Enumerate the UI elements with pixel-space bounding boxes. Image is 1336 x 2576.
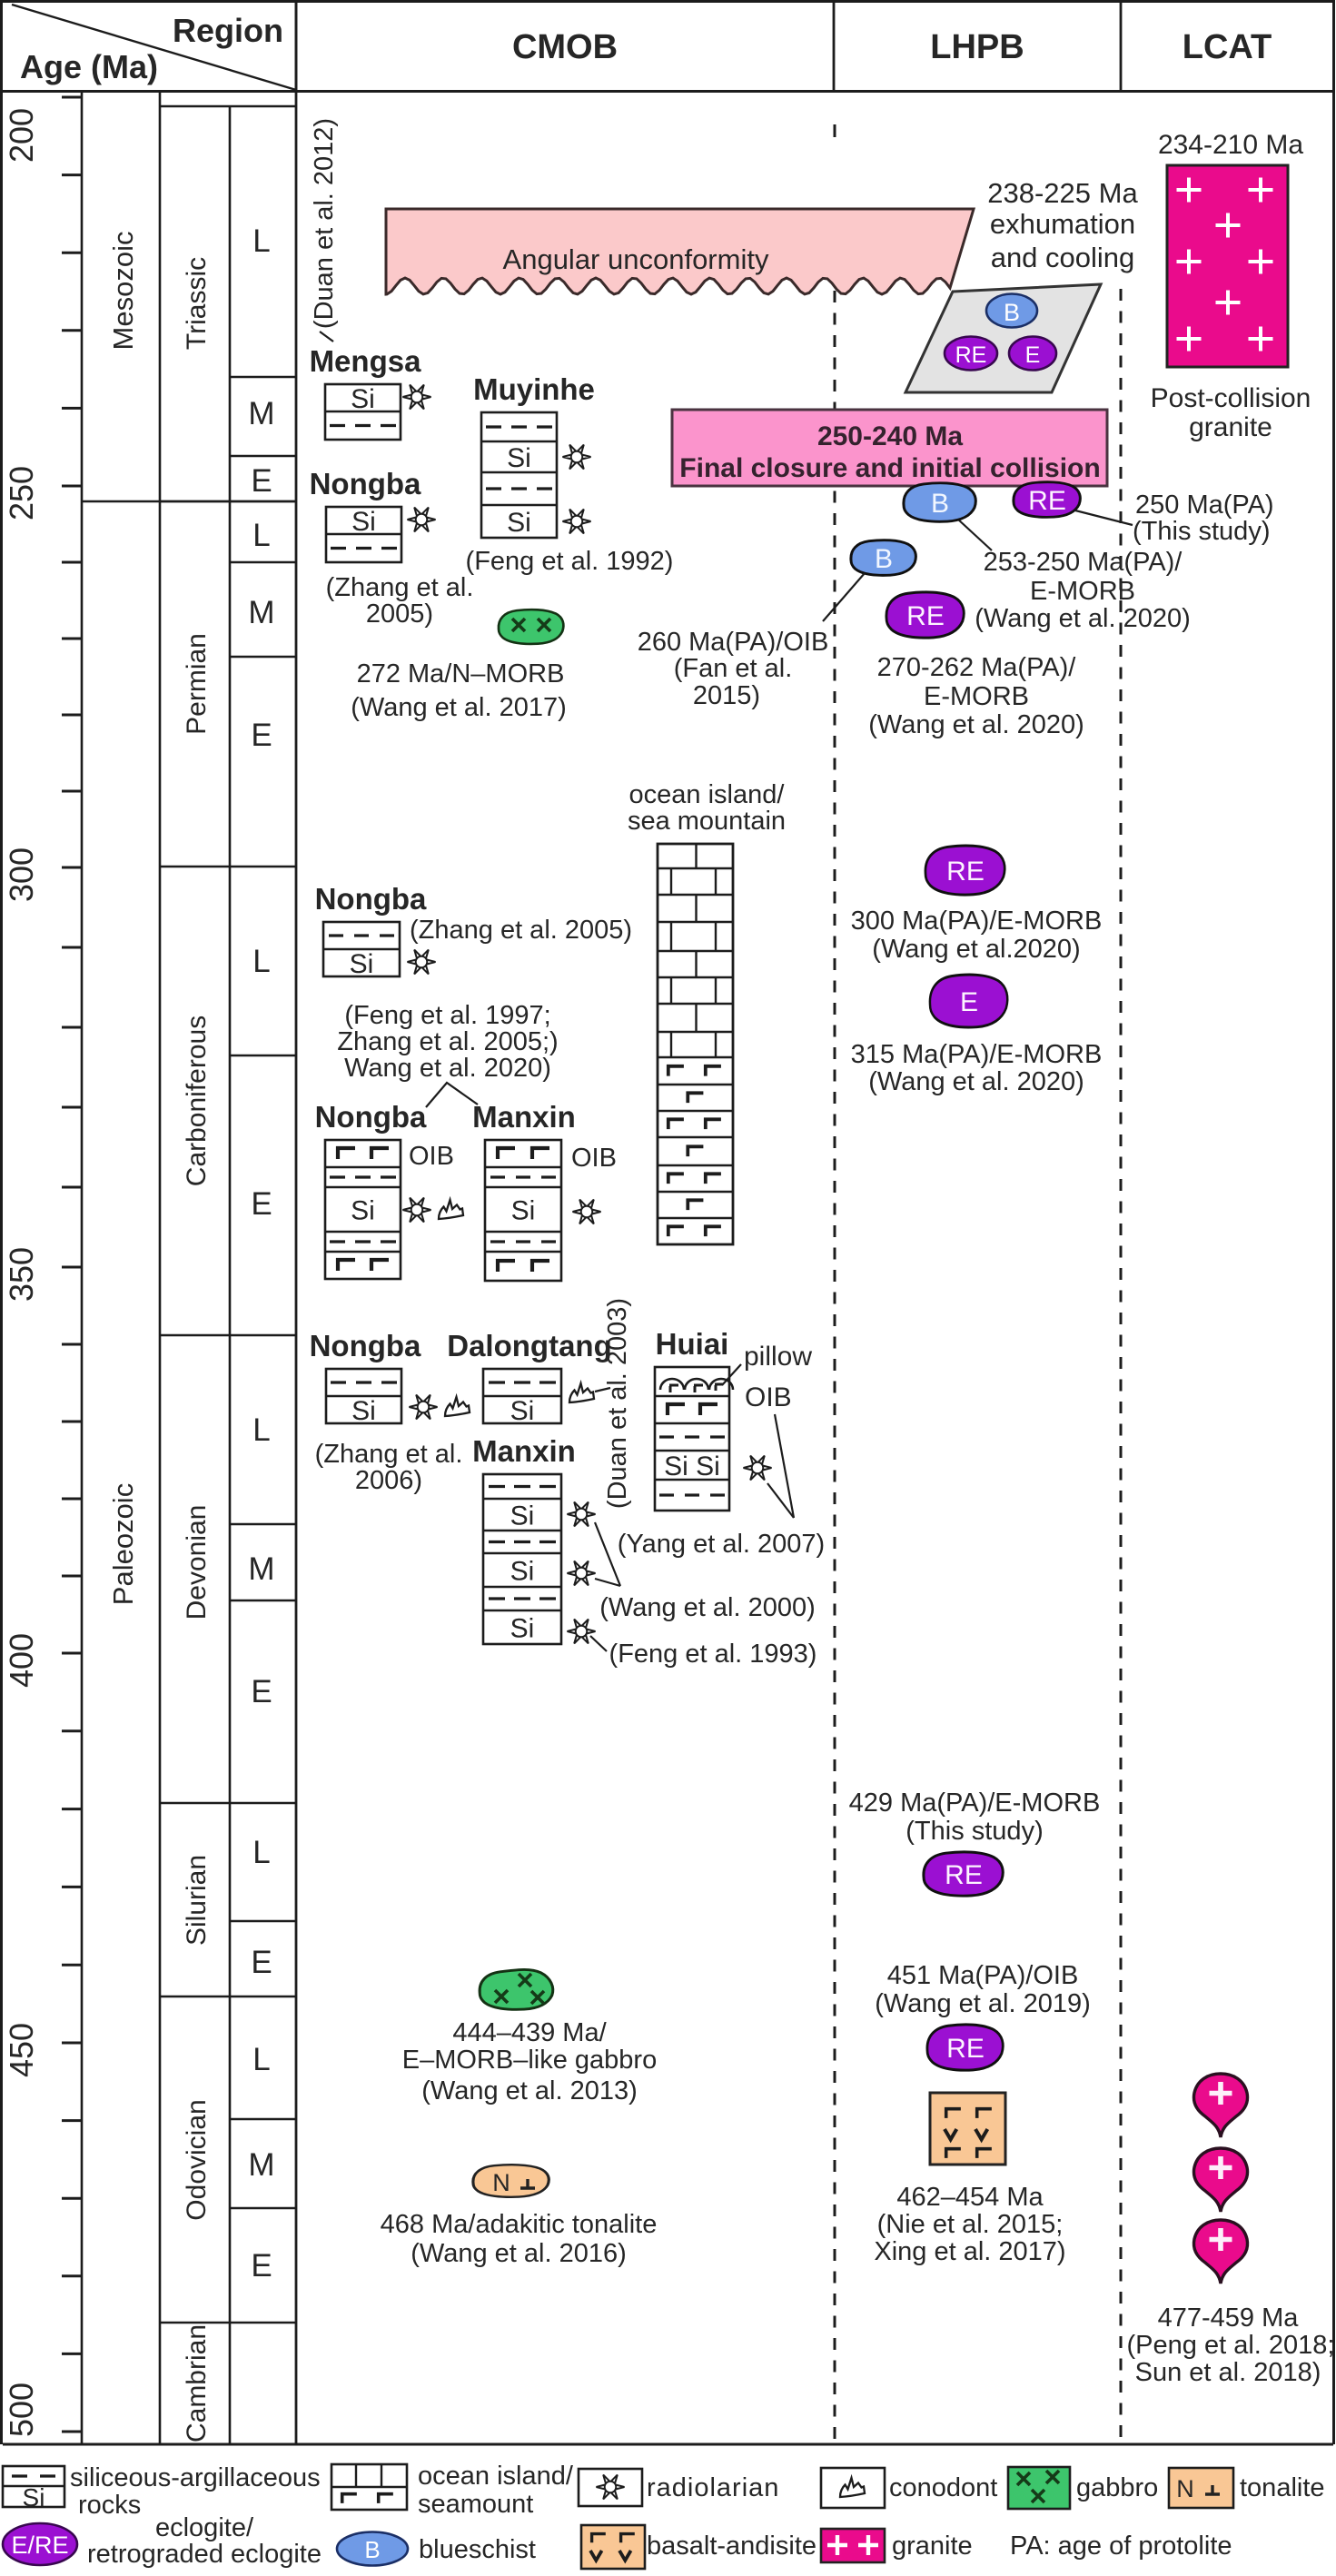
svg-text:Si: Si	[510, 1557, 535, 1587]
svg-text:(This study): (This study)	[1133, 517, 1270, 546]
svg-text:477-459 Ma: 477-459 Ma	[1158, 2304, 1300, 2333]
svg-text:Manxin: Manxin	[472, 1100, 576, 1134]
svg-text:L: L	[252, 1412, 270, 1448]
svg-text:Mengsa: Mengsa	[310, 344, 422, 378]
svg-text:ocean island/: ocean island/	[418, 2462, 574, 2491]
svg-text:PA: age of protolite: PA: age of protolite	[1010, 2531, 1232, 2561]
svg-text:2005): 2005)	[366, 599, 433, 629]
svg-text:N: N	[1176, 2475, 1194, 2502]
svg-text:tonalite: tonalite	[1240, 2473, 1325, 2502]
svg-text:Silurian: Silurian	[182, 1855, 212, 1946]
svg-text:444–439 Ma/: 444–439 Ma/	[452, 2018, 607, 2047]
svg-text:Xing et al. 2017): Xing et al. 2017)	[874, 2237, 1065, 2266]
svg-text:(Fan et al.: (Fan et al.	[674, 654, 793, 683]
svg-text:E-MORB: E-MORB	[924, 682, 1029, 711]
svg-text:rocks: rocks	[78, 2491, 141, 2520]
svg-text:(Feng et al. 1992): (Feng et al. 1992)	[466, 547, 674, 576]
svg-text:and cooling: and cooling	[991, 242, 1135, 273]
svg-text:Paleozoic: Paleozoic	[107, 1483, 139, 1605]
svg-text:238-225 Ma: 238-225 Ma	[987, 177, 1138, 209]
svg-text:Post-collision: Post-collision	[1151, 383, 1311, 413]
svg-text:L: L	[252, 223, 270, 259]
svg-text:eclogite/: eclogite/	[155, 2513, 254, 2542]
svg-text:E: E	[251, 2248, 272, 2284]
svg-text:Cambrian: Cambrian	[182, 2324, 212, 2442]
svg-text:seamount: seamount	[418, 2490, 533, 2519]
svg-text:Muyinhe: Muyinhe	[473, 372, 595, 406]
svg-text:260 Ma(PA)/OIB: 260 Ma(PA)/OIB	[638, 628, 829, 657]
svg-text:(Wang et al. 2020): (Wang et al. 2020)	[868, 710, 1084, 739]
svg-text:OIB: OIB	[409, 1142, 454, 1171]
svg-text:Zhang et al. 2005;): Zhang et al. 2005;)	[337, 1027, 558, 1056]
svg-text:(Duan et al. 2012): (Duan et al. 2012)	[310, 118, 339, 329]
svg-text:M: M	[248, 1551, 274, 1587]
svg-text:250-240 Ma: 250-240 Ma	[817, 421, 963, 451]
svg-text:B: B	[931, 489, 949, 519]
svg-text:ocean island/: ocean island/	[629, 780, 786, 809]
svg-text:Dalongtang: Dalongtang	[447, 1329, 611, 1362]
svg-text:N: N	[492, 2169, 510, 2196]
svg-text:Si: Si	[351, 1396, 376, 1426]
svg-text:RE: RE	[946, 857, 985, 887]
svg-text:L: L	[252, 944, 270, 979]
svg-text:blueschist: blueschist	[419, 2535, 536, 2564]
svg-text:M: M	[248, 595, 274, 630]
svg-text:Carboniferous: Carboniferous	[182, 1016, 212, 1186]
svg-text:(Wang et al. 2020): (Wang et al. 2020)	[975, 604, 1191, 633]
svg-text:234-210 Ma: 234-210 Ma	[1158, 130, 1303, 160]
svg-text:(Wang et al. 2000): (Wang et al. 2000)	[599, 1593, 816, 1622]
svg-text:Permian: Permian	[182, 633, 212, 735]
svg-text:Si: Si	[510, 1614, 535, 1644]
svg-text:retrograded eclogite: retrograded eclogite	[87, 2540, 322, 2569]
svg-text:(Zhang et al. 2005): (Zhang et al. 2005)	[410, 916, 632, 945]
svg-text:462–454 Ma: 462–454 Ma	[896, 2183, 1044, 2212]
svg-text:450: 450	[3, 2023, 40, 2077]
svg-text:OIB: OIB	[745, 1382, 792, 1412]
svg-text:400: 400	[3, 1633, 40, 1688]
svg-text:(Duan et al. 2003): (Duan et al. 2003)	[603, 1298, 632, 1509]
svg-text:Si: Si	[511, 1196, 536, 1226]
svg-text:E: E	[960, 987, 978, 1017]
svg-text:LCAT: LCAT	[1183, 28, 1272, 66]
svg-text:Sun et al. 2018): Sun et al. 2018)	[1135, 2358, 1321, 2387]
svg-text:2015): 2015)	[693, 681, 760, 710]
svg-text:Si Si: Si Si	[664, 1451, 720, 1481]
svg-text:Devonian: Devonian	[182, 1505, 212, 1620]
svg-text:468 Ma/adakitic tonalite: 468 Ma/adakitic tonalite	[381, 2210, 658, 2239]
svg-text:(Wang et al. 2020): (Wang et al. 2020)	[868, 1067, 1084, 1096]
svg-text:Angular unconformity: Angular unconformity	[503, 243, 769, 275]
svg-text:Si: Si	[510, 1501, 535, 1531]
svg-text:B: B	[364, 2536, 380, 2563]
svg-text:Si: Si	[507, 508, 531, 538]
svg-text:Si: Si	[350, 949, 374, 979]
svg-text:429 Ma(PA)/E-MORB: 429 Ma(PA)/E-MORB	[849, 1788, 1101, 1818]
svg-text:(Feng et al. 1993): (Feng et al. 1993)	[609, 1640, 817, 1669]
svg-text:300 Ma(PA)/E-MORB: 300 Ma(PA)/E-MORB	[851, 907, 1103, 936]
svg-text:granite: granite	[1189, 412, 1272, 442]
svg-text:315 Ma(PA)/E-MORB: 315 Ma(PA)/E-MORB	[851, 1040, 1103, 1069]
svg-text:Wang et al. 2020): Wang et al. 2020)	[344, 1054, 551, 1083]
svg-text:Huiai: Huiai	[656, 1327, 729, 1361]
svg-text:250: 250	[3, 466, 40, 520]
svg-text:(Peng et al. 2018;: (Peng et al. 2018;	[1127, 2331, 1335, 2360]
svg-text:(Wang et al.2020): (Wang et al.2020)	[872, 935, 1080, 964]
svg-text:(Wang et al. 2016): (Wang et al. 2016)	[411, 2239, 627, 2268]
svg-text:M: M	[248, 2147, 274, 2183]
svg-text:200: 200	[3, 108, 40, 163]
svg-text:Mesozoic: Mesozoic	[107, 232, 139, 351]
svg-text:M: M	[248, 396, 274, 431]
svg-text:Si: Si	[23, 2483, 45, 2512]
svg-text:Nongba: Nongba	[310, 467, 421, 500]
svg-text:(Yang et al. 2007): (Yang et al. 2007)	[618, 1530, 825, 1559]
svg-text:Age (Ma): Age (Ma)	[20, 48, 158, 85]
svg-text:(Wang et al. 2017): (Wang et al. 2017)	[351, 693, 567, 722]
svg-text:E: E	[251, 1186, 272, 1222]
svg-text:Si: Si	[510, 1396, 535, 1426]
svg-text:L: L	[252, 1835, 270, 1870]
svg-text:250 Ma(PA): 250 Ma(PA)	[1135, 490, 1274, 520]
svg-text:E: E	[251, 718, 272, 753]
svg-text:RE: RE	[945, 1860, 983, 1890]
svg-text:500: 500	[3, 2383, 40, 2437]
svg-text:E: E	[251, 463, 272, 499]
svg-text:(Wang et al. 2019): (Wang et al. 2019)	[875, 1989, 1091, 2018]
svg-text:granite: granite	[892, 2531, 973, 2561]
svg-text:E-MORB: E-MORB	[1030, 577, 1135, 606]
svg-text:(This study): (This study)	[906, 1817, 1043, 1846]
svg-text:B: B	[1004, 299, 1020, 326]
svg-text:L: L	[252, 518, 270, 553]
svg-text:Odovician: Odovician	[182, 2099, 212, 2220]
svg-text:sea mountain: sea mountain	[628, 807, 786, 836]
svg-text:Si: Si	[351, 384, 375, 414]
svg-text:Si: Si	[351, 507, 376, 537]
svg-text:Si: Si	[507, 443, 531, 473]
svg-text:Manxin: Manxin	[472, 1434, 576, 1468]
svg-text:RE: RE	[946, 2034, 985, 2064]
svg-text:pillow: pillow	[744, 1342, 812, 1372]
svg-text:Region: Region	[173, 12, 283, 49]
svg-text:RE: RE	[906, 601, 945, 631]
svg-text:270-262 Ma(PA)/: 270-262 Ma(PA)/	[877, 653, 1077, 682]
svg-text:RE: RE	[955, 342, 987, 368]
svg-text:Final closure and initial coll: Final closure and initial collision	[679, 453, 1100, 483]
svg-text:350: 350	[3, 1247, 40, 1302]
svg-text:(Feng et al. 1997;: (Feng et al. 1997;	[344, 1001, 550, 1030]
svg-text:E: E	[251, 1674, 272, 1709]
svg-text:2006): 2006)	[355, 1466, 422, 1495]
svg-text:gabbro: gabbro	[1076, 2473, 1158, 2502]
svg-text:E: E	[1025, 342, 1041, 368]
svg-text:272 Ma/N–MORB: 272 Ma/N–MORB	[357, 659, 565, 689]
svg-text:(Zhang et al.: (Zhang et al.	[326, 573, 474, 602]
svg-text:300: 300	[3, 847, 40, 902]
svg-text:basalt-andisite: basalt-andisite	[647, 2531, 816, 2561]
svg-text:OIB: OIB	[571, 1144, 617, 1173]
svg-text:CMOB: CMOB	[512, 28, 618, 66]
svg-text:Triassic: Triassic	[182, 257, 212, 350]
svg-text:(Nie et al. 2015;: (Nie et al. 2015;	[877, 2210, 1064, 2239]
svg-text:B: B	[875, 544, 893, 574]
svg-text:LHPB: LHPB	[930, 28, 1024, 66]
svg-text:L: L	[252, 2042, 270, 2077]
svg-text:exhumation: exhumation	[990, 208, 1135, 240]
svg-text:253-250 Ma(PA)/: 253-250 Ma(PA)/	[984, 548, 1183, 577]
svg-text:E/RE: E/RE	[11, 2531, 68, 2559]
svg-text:Nongba: Nongba	[310, 1329, 421, 1362]
svg-text:E–MORB–like gabbro: E–MORB–like gabbro	[402, 2046, 657, 2075]
svg-text:radiolarian: radiolarian	[647, 2473, 779, 2502]
svg-text:(Wang et al. 2013): (Wang et al. 2013)	[421, 2076, 638, 2105]
svg-text:Si: Si	[351, 1196, 375, 1226]
svg-text:Nongba: Nongba	[315, 1100, 427, 1134]
svg-text:RE: RE	[1028, 486, 1066, 516]
svg-text:Nongba: Nongba	[315, 882, 427, 916]
svg-text:siliceous-argillaceous: siliceous-argillaceous	[70, 2463, 321, 2492]
svg-text:E: E	[251, 1945, 272, 1980]
svg-text:(Zhang et al.: (Zhang et al.	[315, 1440, 463, 1469]
svg-text:conodont: conodont	[889, 2473, 997, 2502]
svg-text:451 Ma(PA)/OIB: 451 Ma(PA)/OIB	[887, 1961, 1079, 1990]
